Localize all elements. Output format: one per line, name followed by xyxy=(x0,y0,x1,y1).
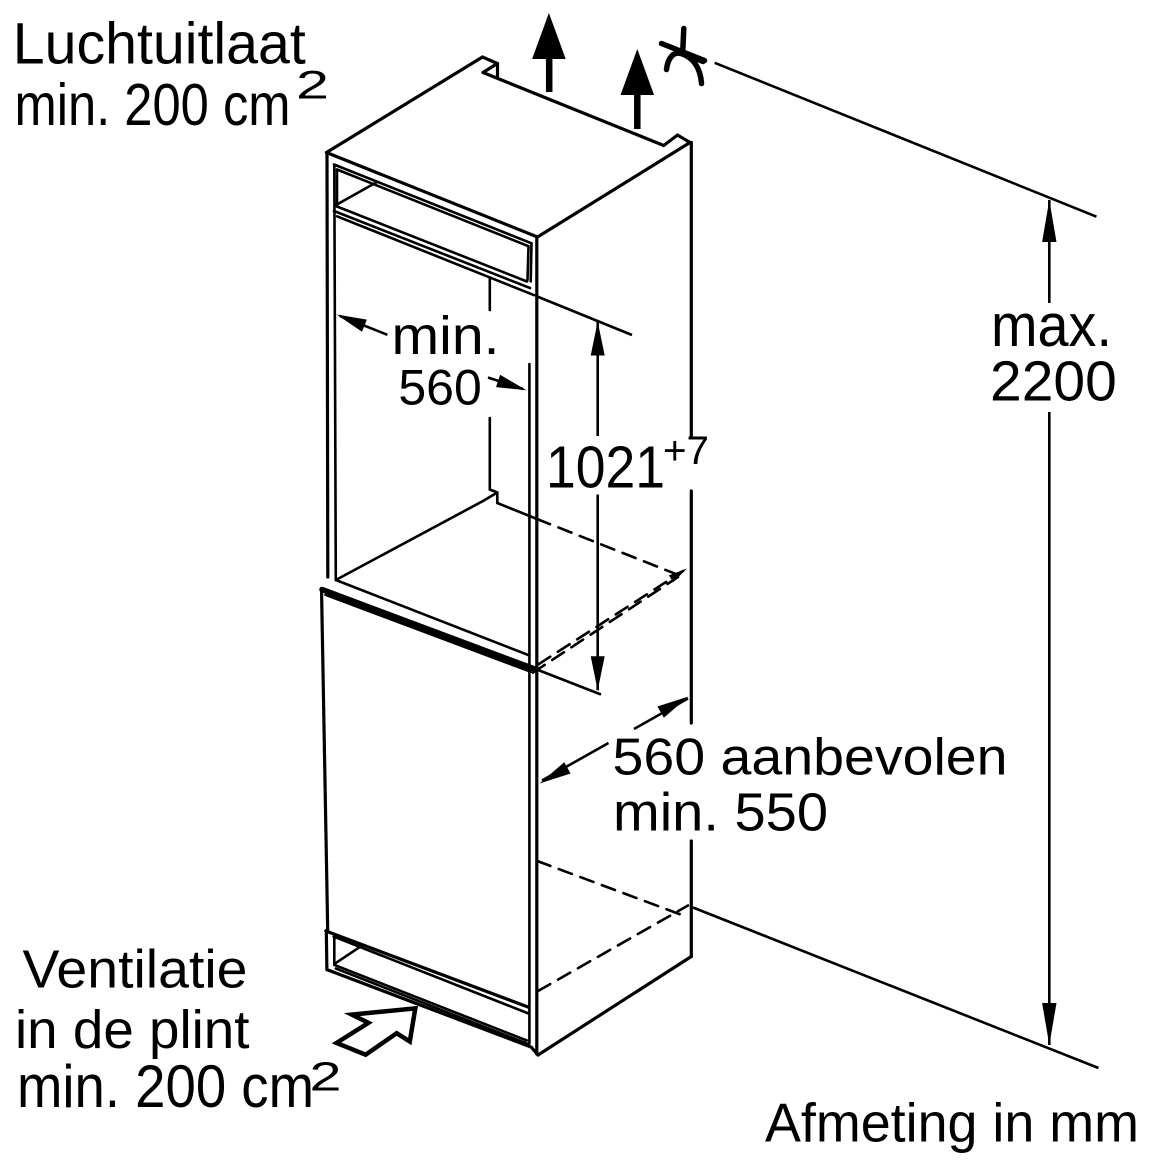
svg-text:Afmeting in mm: Afmeting in mm xyxy=(765,1091,1139,1153)
svg-text:2: 2 xyxy=(310,1054,342,1100)
svg-text:min. 200 cm: min. 200 cm xyxy=(17,1053,314,1120)
svg-text:min.: min. xyxy=(392,306,500,366)
svg-text:Luchtuitlaat: Luchtuitlaat xyxy=(13,11,306,76)
svg-text:Ventilatie: Ventilatie xyxy=(23,940,248,1000)
svg-text:560 aanbevolen: 560 aanbevolen xyxy=(613,729,1008,787)
svg-text:2200: 2200 xyxy=(990,349,1117,413)
svg-text:min. 550: min. 550 xyxy=(613,783,828,843)
svg-text:560: 560 xyxy=(398,359,481,415)
svg-text:min. 200 cm: min. 200 cm xyxy=(15,72,291,138)
svg-text:1021: 1021 xyxy=(546,435,665,501)
svg-text:+7: +7 xyxy=(663,429,709,473)
svg-text:2: 2 xyxy=(296,63,329,107)
svg-text:in de plint: in de plint xyxy=(15,1000,250,1060)
